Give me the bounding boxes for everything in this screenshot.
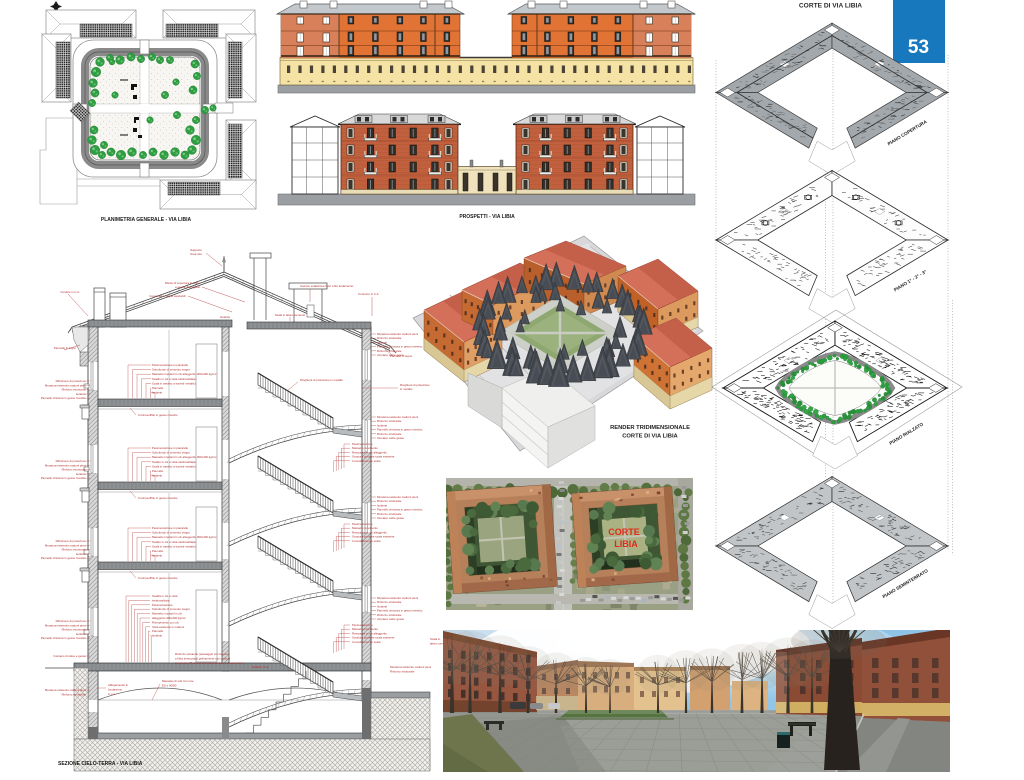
svg-text:CORTE DI VIA LIBIA: CORTE DI VIA LIBIA [799, 3, 862, 10]
svg-text:Volta esistente in mattoni: Volta esistente in mattoni [152, 625, 184, 629]
svg-text:in c.a.: in c.a. [108, 692, 116, 696]
svg-text:Pavimentazione in piastrelle: Pavimentazione in piastrelle [152, 446, 188, 450]
svg-text:Pannello chiusura in gesso riv: Pannello chiusura in gesso rivestito [41, 636, 87, 640]
svg-text:ES e 60/80: ES e 60/80 [162, 683, 177, 687]
svg-text:Pannello: Pannello [152, 386, 164, 390]
svg-text:53: 53 [908, 37, 929, 58]
svg-text:Camino esalazione fuori a filo: Camino esalazione fuori a filo andamento [300, 284, 354, 288]
svg-text:Cordolo in C.A.: Cordolo in C.A. [60, 290, 80, 294]
svg-text:in metallo: in metallo [400, 387, 413, 391]
svg-text:Copertura in legno sandwich: Copertura in legno sandwich [149, 294, 186, 298]
svg-text:Rinforzo strutturale: Rinforzo strutturale [390, 669, 415, 673]
svg-text:fondazione: fondazione [108, 687, 123, 691]
svg-text:Isolante: Isolante [220, 315, 231, 319]
svg-text:Controsoffitto in gesso rivest: Controsoffitto in gesso rivestito [138, 413, 178, 417]
svg-text:SEZIONE CIELO-TERRA - VIA LIBI: SEZIONE CIELO-TERRA - VIA LIBIA [58, 761, 143, 767]
svg-text:Pannello: Pannello [152, 629, 164, 633]
svg-text:Controsoffitto in gesso rivest: Controsoffitto in gesso rivestito [138, 496, 178, 500]
svg-text:Pannello: Pannello [152, 469, 164, 473]
svg-text:PLANIMETRIA GENERALE - VIA LIB: PLANIMETRIA GENERALE - VIA LIBIA [101, 217, 192, 223]
svg-text:Scalda in cls a vista: Scalda in cls a vista [152, 594, 178, 598]
svg-text:Muratura esistente mattoni pie: Muratura esistente mattoni pieni [390, 665, 431, 669]
svg-text:Massetto impianti in cls alleg: Massetto impianti in cls alleggerito 300… [152, 455, 217, 459]
svg-text:Scala in latero-cemento: Scala in latero-cemento [275, 313, 306, 317]
svg-text:Massetto impianti in cls: Massetto impianti in cls [152, 612, 182, 616]
svg-text:Controsoffitto in gesso rivest: Controsoffitto in gesso rivestito [138, 576, 178, 580]
svg-text:Scala in assetto a travetti me: Scala in assetto a travetti metallici [152, 464, 196, 468]
svg-text:LIBIA: LIBIA [614, 539, 638, 549]
svg-text:Sottofondo di cemento magro: Sottofondo di cemento magro [152, 607, 190, 611]
svg-text:Pannello: Pannello [152, 549, 164, 553]
svg-text:Pannello in legno: Pannello in legno [54, 346, 77, 350]
svg-text:inorganico (Rottura incrinatin: inorganico (Rottura incrinatina similare… [175, 661, 243, 665]
svg-text:PROSPETTI - VIA LIBIA: PROSPETTI - VIA LIBIA [459, 214, 515, 220]
svg-text:a fibra intrecciata) gelivamen: a fibra intrecciata) gelivamente con mat… [175, 656, 230, 660]
svg-text:Pavimentazione in piastrelle: Pavimentazione in piastrelle [152, 363, 188, 367]
svg-text:Rinforzo strutturale: Rinforzo strutturale [62, 692, 87, 696]
svg-text:Consolidamento scala: Consolidamento scala [352, 640, 381, 644]
svg-text:Consolidamento scala: Consolidamento scala [352, 459, 381, 463]
svg-text:Pavimentazione in piastrelle: Pavimentazione in piastrelle [152, 526, 188, 530]
svg-text:Intonaco calce gesso: Intonaco calce gesso [377, 516, 405, 520]
svg-text:Contorno in C.A.: Contorno in C.A. [358, 292, 380, 296]
svg-text:Scala in assetto a travetti me: Scala in assetto a travetti metallici [152, 381, 196, 385]
svg-text:Massetto di sub con rete: Massetto di sub con rete [162, 679, 194, 683]
svg-text:Pannello chiusura in gesso riv: Pannello chiusura in gesso rivestito [41, 556, 87, 560]
svg-text:Scaldo in cls a vista elettros: Scaldo in cls a vista elettrosaldata [152, 460, 196, 464]
svg-text:Sottofondo di cemento magro: Sottofondo di cemento magro [152, 451, 190, 455]
svg-text:Rinforzo esistente (passaggio: Rinforzo esistente (passaggio con tessut… [175, 652, 229, 656]
svg-text:Ringhiera di protezione in met: Ringhiera di protezione in metallo [300, 378, 343, 382]
svg-text:Intonaco di calce e gesso: Intonaco di calce e gesso [53, 654, 86, 658]
svg-text:RENDER TRIDIMENSIONALE: RENDER TRIDIMENSIONALE [610, 425, 690, 431]
svg-text:Scaldo in cls a vista elettros: Scaldo in cls a vista elettrosaldata [152, 540, 196, 544]
svg-text:Sottofondo di cemento magro: Sottofondo di cemento magro [152, 368, 190, 372]
svg-text:Riempimento con cls: Riempimento con cls [152, 620, 179, 624]
svg-text:Scaldo in cls a vista elettros: Scaldo in cls a vista elettrosaldata [152, 377, 196, 381]
svg-text:Scala in C.A.: Scala in C.A. [252, 665, 269, 669]
svg-text:Scala in assetto a travetti me: Scala in assetto a travetti metallici [152, 544, 196, 548]
svg-text:elettrosaldata: elettrosaldata [152, 598, 170, 602]
svg-text:e tegole marsigliesi: e tegole marsigliesi [175, 285, 200, 289]
svg-text:alleggerito 300x400 kg/mc: alleggerito 300x400 kg/mc [152, 616, 186, 620]
svg-text:Pannello chiusura in gesso riv: Pannello chiusura in gesso rivestito [41, 396, 87, 400]
svg-text:Scala in: Scala in [430, 637, 441, 641]
svg-text:Massetto impianti in cls alleg: Massetto impianti in cls alleggerito 300… [152, 535, 217, 539]
svg-text:CORTE: CORTE [608, 527, 640, 537]
svg-text:linea vita: linea vita [190, 252, 202, 256]
svg-text:Pavimentazione: Pavimentazione [152, 603, 173, 607]
svg-text:Isolante: Isolante [152, 634, 163, 638]
svg-text:Intonaco calce gesso: Intonaco calce gesso [377, 617, 405, 621]
svg-text:Pannello chiusura in gesso riv: Pannello chiusura in gesso rivestito [41, 476, 87, 480]
svg-text:Intonaco calce gesso: Intonaco calce gesso [377, 353, 405, 357]
svg-text:Abbigamento in: Abbigamento in [108, 683, 128, 687]
svg-text:Massetto impianti in cls alleg: Massetto impianti in cls alleggerito 300… [152, 372, 217, 376]
svg-text:Intonaco calce gesso: Intonaco calce gesso [377, 436, 405, 440]
svg-text:Sottofondo di cemento magro: Sottofondo di cemento magro [152, 531, 190, 535]
svg-text:Consolidamento scala: Consolidamento scala [352, 539, 381, 543]
svg-text:CORTE DI VIA LIBIA: CORTE DI VIA LIBIA [622, 434, 678, 440]
